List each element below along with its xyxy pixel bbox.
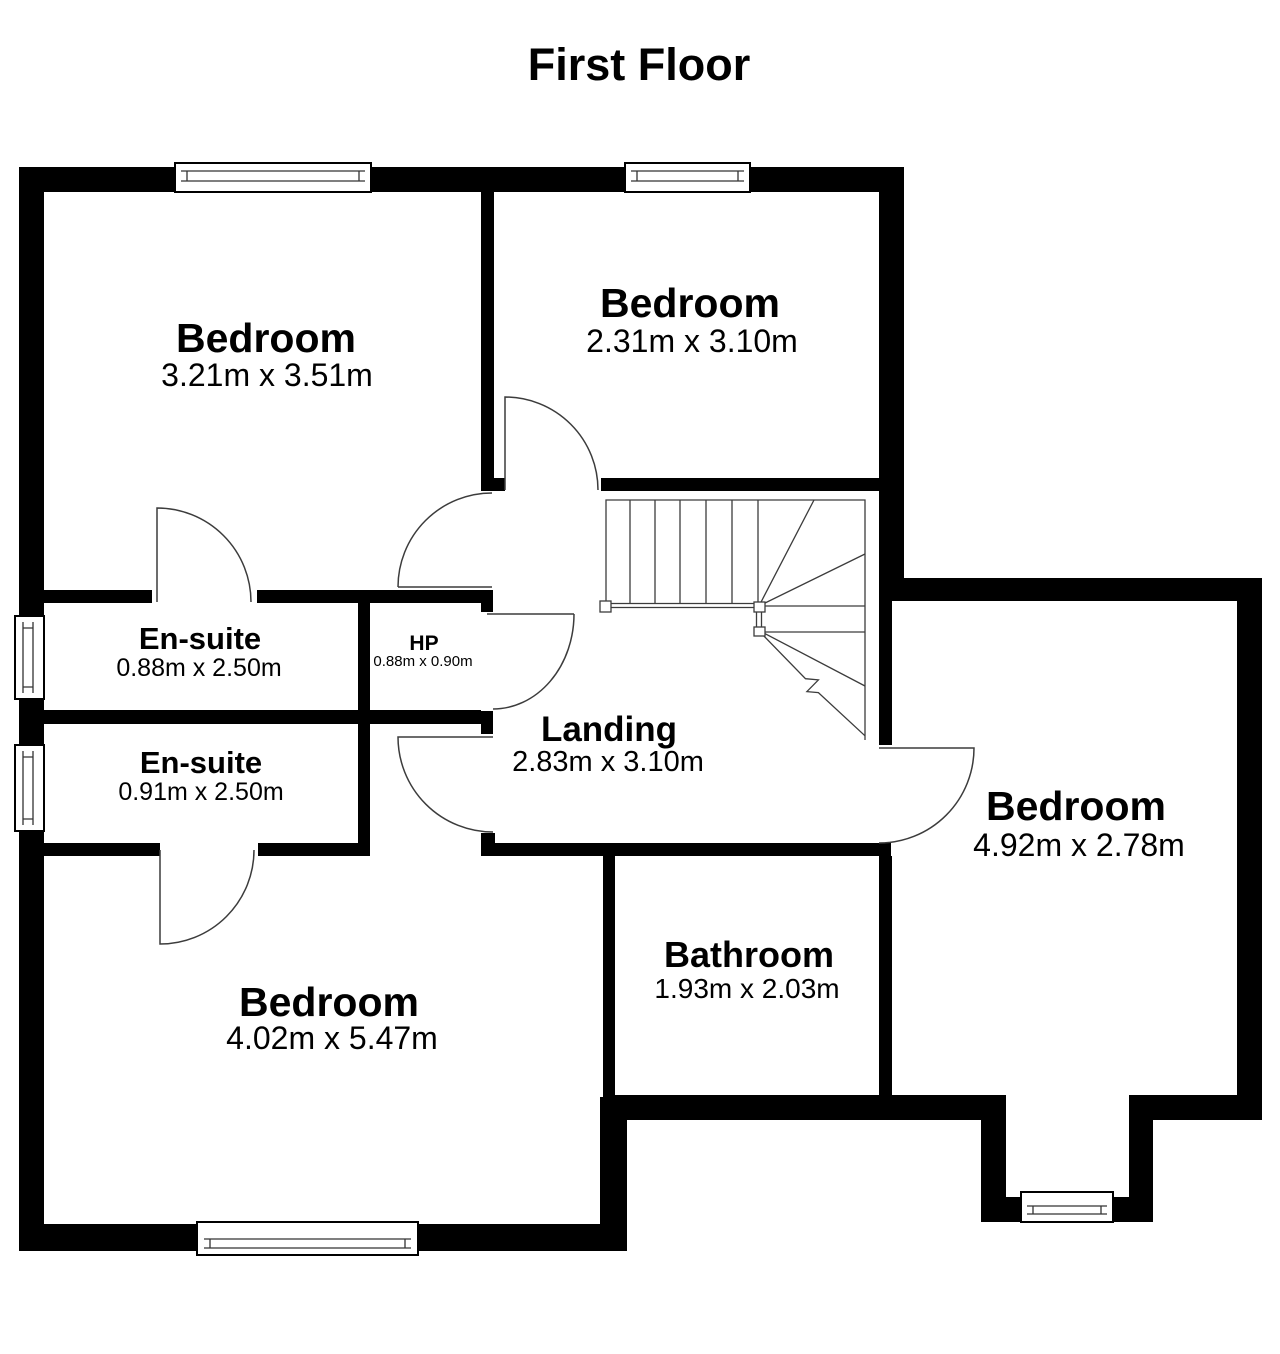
- svg-text:Bedroom: Bedroom: [600, 280, 780, 326]
- svg-text:Bedroom: Bedroom: [239, 979, 419, 1025]
- svg-text:Landing: Landing: [541, 710, 677, 749]
- svg-text:En-suite: En-suite: [140, 745, 262, 780]
- svg-text:2.31m x 3.10m: 2.31m x 3.10m: [586, 323, 798, 359]
- svg-text:3.21m x 3.51m: 3.21m x 3.51m: [161, 357, 373, 393]
- svg-text:4.02m x 5.47m: 4.02m x 5.47m: [226, 1020, 438, 1056]
- svg-text:En-suite: En-suite: [139, 621, 261, 656]
- svg-text:0.88m x 0.90m: 0.88m x 0.90m: [373, 653, 472, 670]
- svg-text:1.93m x 2.03m: 1.93m x 2.03m: [654, 973, 839, 1004]
- svg-text:Bathroom: Bathroom: [664, 934, 834, 975]
- svg-text:Bedroom: Bedroom: [986, 783, 1166, 829]
- svg-text:Bedroom: Bedroom: [176, 315, 356, 361]
- svg-text:HP: HP: [409, 632, 438, 655]
- svg-text:2.83m x 3.10m: 2.83m x 3.10m: [512, 746, 704, 778]
- svg-text:0.91m x 2.50m: 0.91m x 2.50m: [118, 778, 283, 806]
- svg-text:4.92m x 2.78m: 4.92m x 2.78m: [973, 827, 1185, 863]
- svg-text:First Floor: First Floor: [528, 39, 751, 90]
- svg-text:0.88m x 2.50m: 0.88m x 2.50m: [116, 654, 281, 682]
